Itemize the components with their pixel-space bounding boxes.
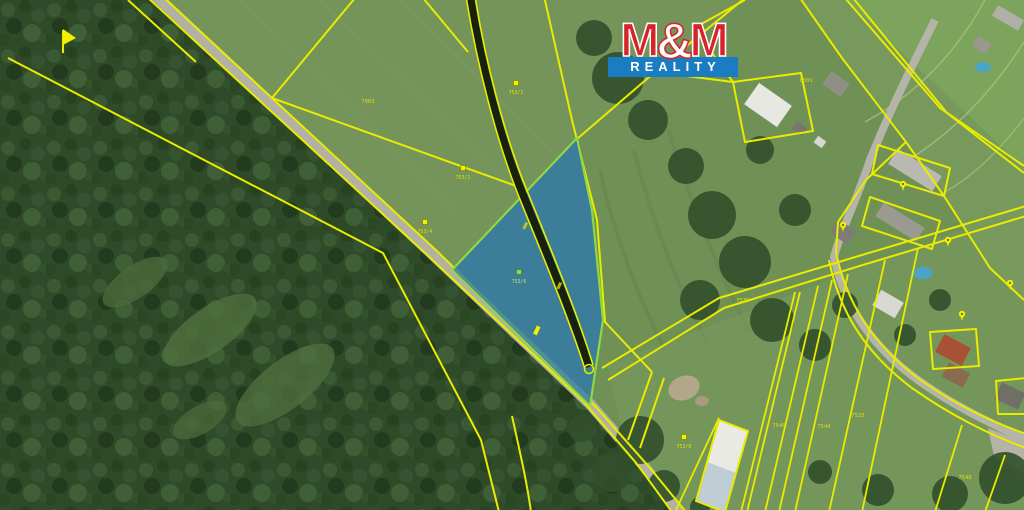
parcel-label: 7533 (851, 413, 864, 419)
svg-text:753/2: 753/2 (456, 175, 471, 181)
parcel-label: 7963 (361, 99, 374, 105)
parcel-label: 7544 (817, 424, 831, 430)
parcel-label: 8001 (799, 78, 812, 84)
map-canvas: 753/1 753/2 753/4 753/6 753/8 7963 8001 … (0, 0, 1024, 510)
svg-text:753/6: 753/6 (512, 279, 527, 285)
parcel-label: 7540 (772, 423, 785, 429)
swimming-pool (913, 267, 933, 279)
svg-text:753/8: 753/8 (677, 444, 692, 450)
svg-text:753/1: 753/1 (509, 90, 524, 96)
parcel-label: 7548 (958, 475, 971, 481)
parcel-label: 7535 (736, 298, 749, 304)
logo-ampersand: & (656, 13, 689, 69)
swimming-pool (975, 62, 991, 72)
svg-text:753/4: 753/4 (418, 229, 433, 235)
aerial-map: 753/1 753/2 753/4 753/6 753/8 7963 8001 … (0, 0, 1024, 510)
mm-reality-logo: M&M REALITY (608, 14, 738, 77)
logo-mm-text: M&M (608, 14, 738, 64)
